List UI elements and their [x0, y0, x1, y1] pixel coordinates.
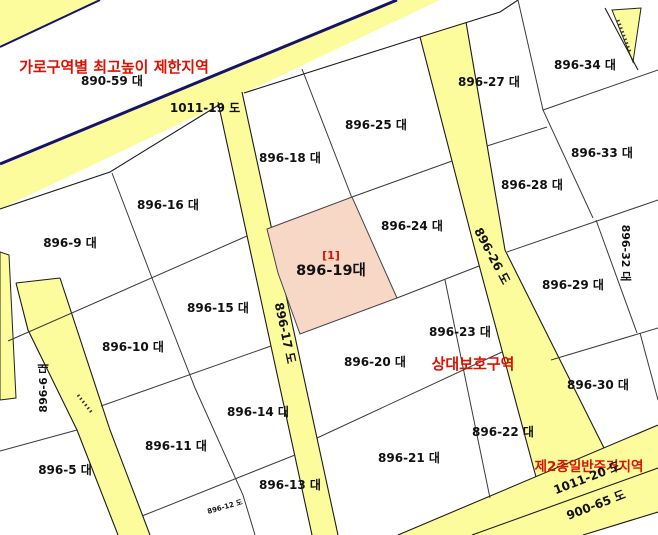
parcel-label-896-16: 896-16 대 [137, 198, 199, 212]
parcel-label-896-24: 896-24 대 [381, 219, 443, 233]
parcel-label-896-9: 896-9 대 [43, 236, 97, 250]
parcel-label-896-34: 896-34 대 [554, 58, 616, 72]
road-label-1011-19: 1011-19 도 [170, 101, 240, 115]
parcel-label-896-23: 896-23 대 [429, 325, 491, 339]
parcel-label-896-27: 896-27 대 [458, 75, 520, 89]
parcel-label-896-18: 896-18 대 [259, 151, 321, 165]
highlight-parcel-label: 896-19대 [296, 262, 366, 279]
parcel-label-896-30: 896-30 대 [567, 378, 629, 392]
map-canvas[interactable]: 가로구역별 최고높이 제한지역 상대보호구역 제2종일반주거지역 [1] 896… [0, 0, 658, 535]
parcel-label-896-20: 896-20 대 [344, 355, 406, 369]
parcel-label-896-6: 896-6 대 [36, 363, 50, 412]
cadastral-map[interactable]: 가로구역별 최고높이 제한지역 상대보호구역 제2종일반주거지역 [1] 896… [0, 0, 658, 535]
parcel-label-896-13: 896-13 대 [259, 478, 321, 492]
parcel-label-896-22: 896-22 대 [472, 425, 534, 439]
parcel-label-896-29: 896-29 대 [542, 278, 604, 292]
zone-label-relative-protection: 상대보호구역 [432, 355, 515, 373]
parcel-label-896-11: 896-11 대 [145, 439, 207, 453]
parcel-label-896-21: 896-21 대 [378, 451, 440, 465]
parcel-label-896-25: 896-25 대 [345, 118, 407, 132]
parcel-label-896-28: 896-28 대 [501, 178, 563, 192]
parcel-label-890-59: 890-59 대 [81, 74, 143, 88]
parcel-label-896-14: 896-14 대 [227, 405, 289, 419]
highlight-parcel-marker: [1] [322, 249, 340, 262]
parcel-label-896-32: 896-32 대 [619, 225, 633, 282]
parcel-label-896-15: 896-15 대 [187, 301, 249, 315]
parcel-label-896-5: 896-5 대 [38, 463, 92, 477]
parcel-label-896-10: 896-10 대 [102, 340, 164, 354]
parcel-label-896-33: 896-33 대 [571, 146, 633, 160]
